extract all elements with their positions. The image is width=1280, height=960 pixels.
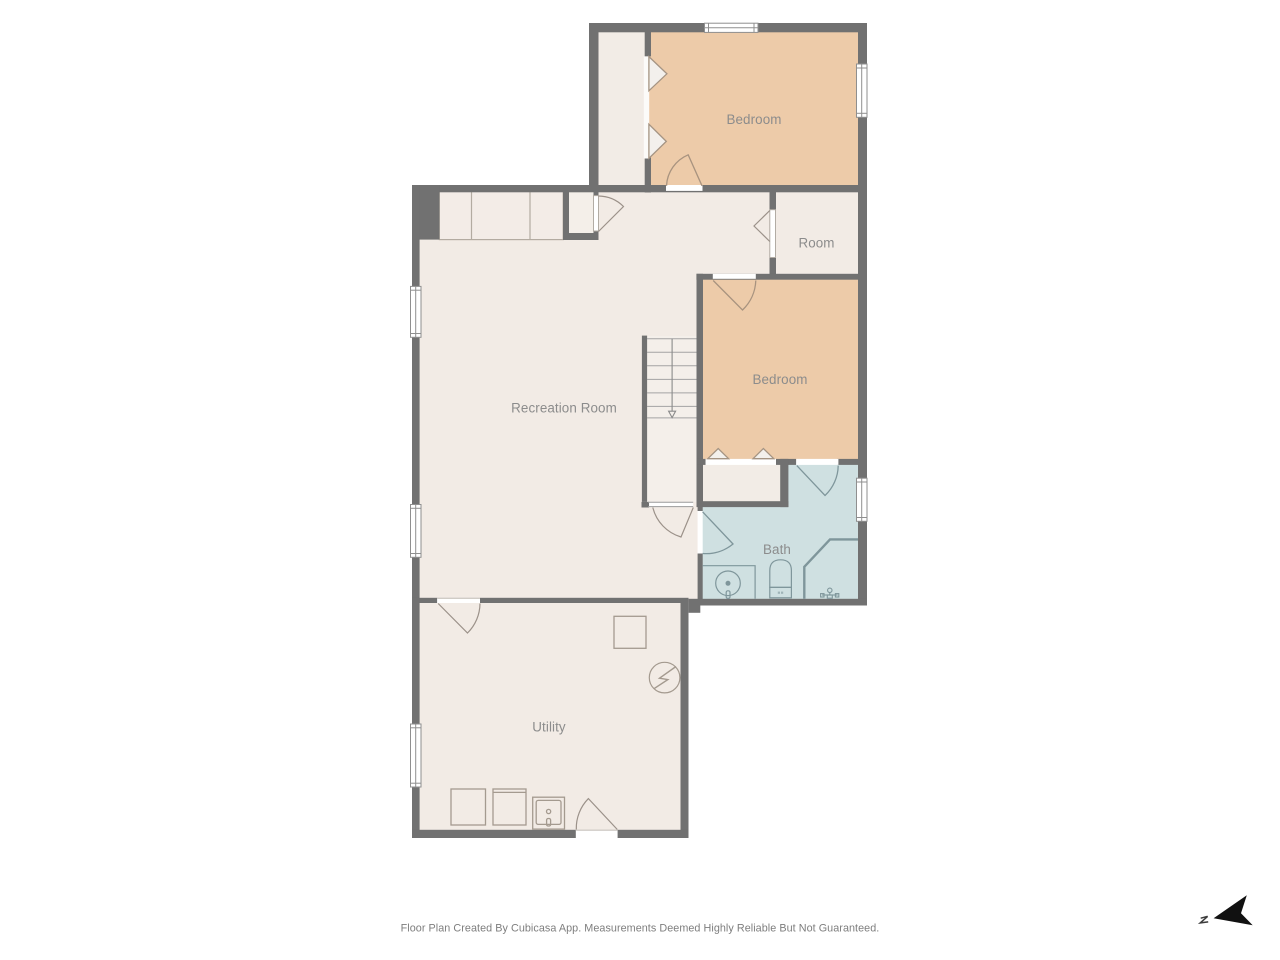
- svg-text:Floor Plan Created By Cubicasa: Floor Plan Created By Cubicasa App. Meas…: [401, 923, 880, 935]
- svg-text:Utility: Utility: [532, 720, 566, 735]
- svg-text:Bedroom: Bedroom: [752, 372, 807, 387]
- svg-text:Bath: Bath: [763, 542, 791, 557]
- svg-text:Recreation Room: Recreation Room: [511, 401, 617, 416]
- svg-text:Bedroom: Bedroom: [726, 112, 781, 127]
- svg-text:Room: Room: [798, 236, 834, 251]
